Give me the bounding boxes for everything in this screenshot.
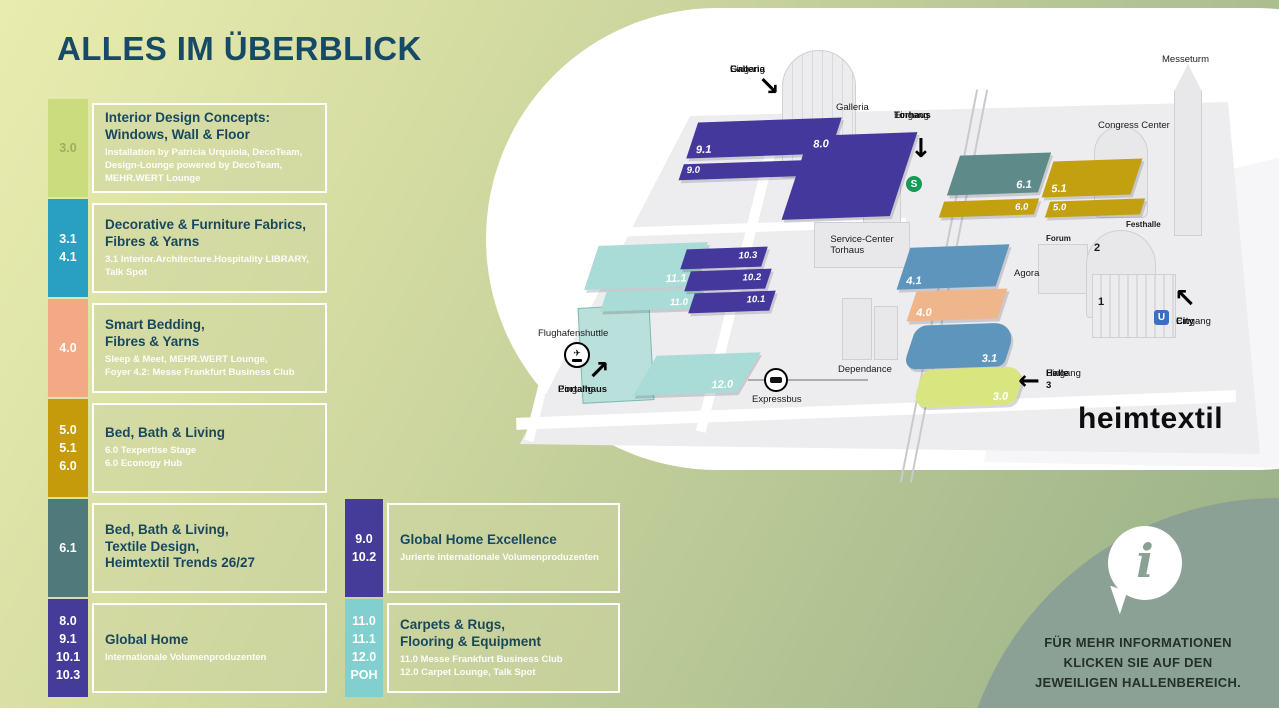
legend-subtitle: Installation by Patricia Urquiola, DecoT… [105, 146, 314, 185]
site-map: Service-Center Torhaus 9.1 9.0 8.0 6.1 5… [486, 8, 1279, 470]
legend-title: Carpets & Rugs, Flooring & Equipment [400, 617, 607, 651]
legend-title: Bed, Bath & Living [105, 425, 314, 442]
legend-card: Carpets & Rugs, Flooring & Equipment 11.… [387, 603, 620, 693]
map-hall-10-3[interactable]: 10.3 [680, 247, 768, 270]
hall-number-tab: 11.0 11.1 12.0 POH [345, 599, 383, 697]
hall-label: 3.1 [981, 353, 997, 365]
arrow-up-right-icon: ↗ [588, 358, 610, 384]
bus-glyph-icon [572, 359, 582, 362]
hall-label: 10.1 [746, 295, 765, 305]
bus-glyph-icon [770, 377, 782, 383]
map-hall-4-0[interactable]: 4.0 [907, 288, 1008, 321]
hall-label: 4.1 [906, 275, 922, 287]
hall-label: 5.0 [1053, 203, 1067, 213]
hall-label: 10.2 [742, 273, 761, 283]
label-festhalle: Festhalle [1126, 220, 1161, 230]
hall-label: 8.0 [813, 138, 829, 150]
bottom-white-strip [0, 708, 1279, 717]
label-dependance: Dependance [838, 364, 892, 375]
hall-number-tab: 3.1 4.1 [48, 199, 88, 297]
airport-shuttle-icon: ✈ [564, 342, 590, 368]
map-hall-4-1[interactable]: 4.1 [897, 244, 1010, 289]
legend-subtitle: 6.0 Texpertise Stage 6.0 Econogy Hub [105, 444, 314, 470]
dependance-building [842, 298, 872, 360]
legend-title: Smart Bedding, Fibres & Yarns [105, 317, 314, 351]
label-agora: Agora [1014, 268, 1039, 279]
legend-card: Decorative & Furniture Fabrics, Fibres &… [92, 203, 327, 293]
hall-number-tab: 4.0 [48, 299, 88, 397]
legend-card: Interior Design Concepts: Windows, Wall … [92, 103, 327, 193]
label-building-2: 2 [1094, 242, 1100, 255]
hall-number-tab: 6.1 [48, 499, 88, 597]
hall-label: 4.0 [916, 307, 932, 319]
info-instruction-text: FÜR MEHR INFORMATIONEN KLICKEN SIE AUF D… [1002, 633, 1274, 693]
entrance-name: City [1176, 316, 1194, 328]
legend-subtitle: Jurierte internationale Volumenproduzent… [400, 551, 607, 564]
hall-number-tab: 5.0 5.1 6.0 [48, 399, 88, 497]
plane-icon: ✈ [573, 349, 581, 358]
hall-label: 11.0 [670, 297, 688, 307]
legend-item-global-home-excellence[interactable]: 9.0 10.2 Global Home Excellence Jurierte… [345, 499, 620, 597]
u-bahn-icon: U [1154, 310, 1169, 325]
hall-label: 10.3 [738, 251, 757, 261]
hall-label: 11.1 [666, 273, 687, 286]
legend-card: Global Home Excellence Jurierte internat… [387, 503, 620, 593]
legend-card: Global Home Internationale Volumenproduz… [92, 603, 327, 693]
legend-card: Bed, Bath & Living, Textile Design, Heim… [92, 503, 327, 593]
arrow-down-right-icon: ↘ [758, 74, 780, 100]
expressbus-icon [764, 368, 788, 392]
legend-item-6-1[interactable]: 6.1 Bed, Bath & Living, Textile Design, … [48, 499, 327, 597]
legend-subtitle: 3.1 Interior.Architecture.Hospitality LI… [105, 253, 314, 279]
map-hall-10-1[interactable]: 10.1 [688, 291, 776, 314]
label-congress-center: Congress Center [1098, 120, 1170, 131]
arrow-up-left-icon: ↖ [1174, 286, 1196, 312]
hall-label: 9.1 [696, 144, 712, 156]
entrance-name: Halle 3 [1046, 368, 1069, 392]
map-hall-5-1[interactable]: 5.1 [1042, 158, 1143, 197]
heimtextil-logo: heimtextil [1078, 402, 1223, 436]
map-hall-11-0[interactable]: 11.0 [600, 288, 702, 311]
hall-number-tab: 9.0 10.2 [345, 499, 383, 597]
legend-item-carpets-rugs[interactable]: 11.0 11.1 12.0 POH Carpets & Rugs, Floor… [345, 599, 620, 697]
map-hall-3-0[interactable]: 3.0 [911, 366, 1027, 408]
map-hall-6-1[interactable]: 6.1 [947, 152, 1051, 195]
hall-label: 6.0 [1015, 203, 1029, 213]
halle-1-building [1092, 274, 1176, 338]
info-bubble-icon: i [1108, 526, 1182, 600]
label-flughafenshuttle: Flughafenshuttle [538, 328, 608, 339]
legend-subtitle: Sleep & Meet, MEHR.WERT Lounge, Foyer 4.… [105, 353, 314, 379]
legend-card: Bed, Bath & Living 6.0 Texpertise Stage … [92, 403, 327, 493]
hall-label: 3.0 [992, 391, 1008, 403]
dependance-building [874, 306, 898, 360]
info-i-glyph: i [1136, 534, 1153, 588]
legend-title: Interior Design Concepts: Windows, Wall … [105, 110, 314, 144]
hall-number-tab: 3.0 [48, 99, 88, 197]
entrance-name: Torhaus [894, 110, 931, 122]
legend-item-global-home[interactable]: 8.0 9.1 10.1 10.3 Global Home Internatio… [48, 599, 327, 697]
legend-subtitle: 11.0 Messe Frankfurt Business Club 12.0 … [400, 653, 607, 679]
messeturm-building [1174, 64, 1202, 236]
hall-label: 12.0 [711, 379, 733, 391]
hall-label: 6.1 [1016, 179, 1032, 191]
legend-item-4-0[interactable]: 4.0 Smart Bedding, Fibres & Yarns Sleep … [48, 299, 327, 397]
hall-label: 5.1 [1051, 183, 1067, 195]
label-forum: Forum [1046, 234, 1071, 244]
legend-subtitle: Internationale Volumenproduzenten [105, 651, 314, 664]
arrow-left-icon: ← [1018, 368, 1040, 394]
overview-page: ALLES IM ÜBERBLICK 3.0 Interior Design C… [0, 0, 1279, 717]
map-hall-10-2[interactable]: 10.2 [684, 269, 772, 292]
hall-label: 9.0 [686, 166, 700, 176]
label-galleria: Galleria [836, 102, 869, 113]
service-center-torhaus-building: Service-Center Torhaus [814, 222, 910, 268]
hall-number-tab: 8.0 9.1 10.1 10.3 [48, 599, 88, 697]
page-title: ALLES IM ÜBERBLICK [57, 30, 422, 68]
legend-title: Global Home Excellence [400, 532, 607, 549]
legend-title: Decorative & Furniture Fabrics, Fibres &… [105, 217, 314, 251]
legend-item-3-0[interactable]: 3.0 Interior Design Concepts: Windows, W… [48, 99, 327, 197]
s-bahn-icon: S [906, 176, 922, 192]
legend-item-5-0-5-1-6-0[interactable]: 5.0 5.1 6.0 Bed, Bath & Living 6.0 Texpe… [48, 399, 327, 497]
legend-item-3-1-4-1[interactable]: 3.1 4.1 Decorative & Furniture Fabrics, … [48, 199, 327, 297]
service-center-label: Service-Center Torhaus [830, 234, 893, 257]
label-messeturm: Messeturm [1162, 54, 1209, 65]
legend-card: Smart Bedding, Fibres & Yarns Sleep & Me… [92, 303, 327, 393]
forum-building [1038, 244, 1088, 294]
arrow-down-icon: ↓ [910, 136, 932, 162]
legend-title: Bed, Bath & Living, Textile Design, Heim… [105, 522, 314, 573]
legend-title: Global Home [105, 632, 314, 649]
label-building-1: 1 [1098, 296, 1104, 309]
map-hall-3-1[interactable]: 3.1 [902, 322, 1018, 369]
label-expressbus: Expressbus [752, 394, 802, 405]
